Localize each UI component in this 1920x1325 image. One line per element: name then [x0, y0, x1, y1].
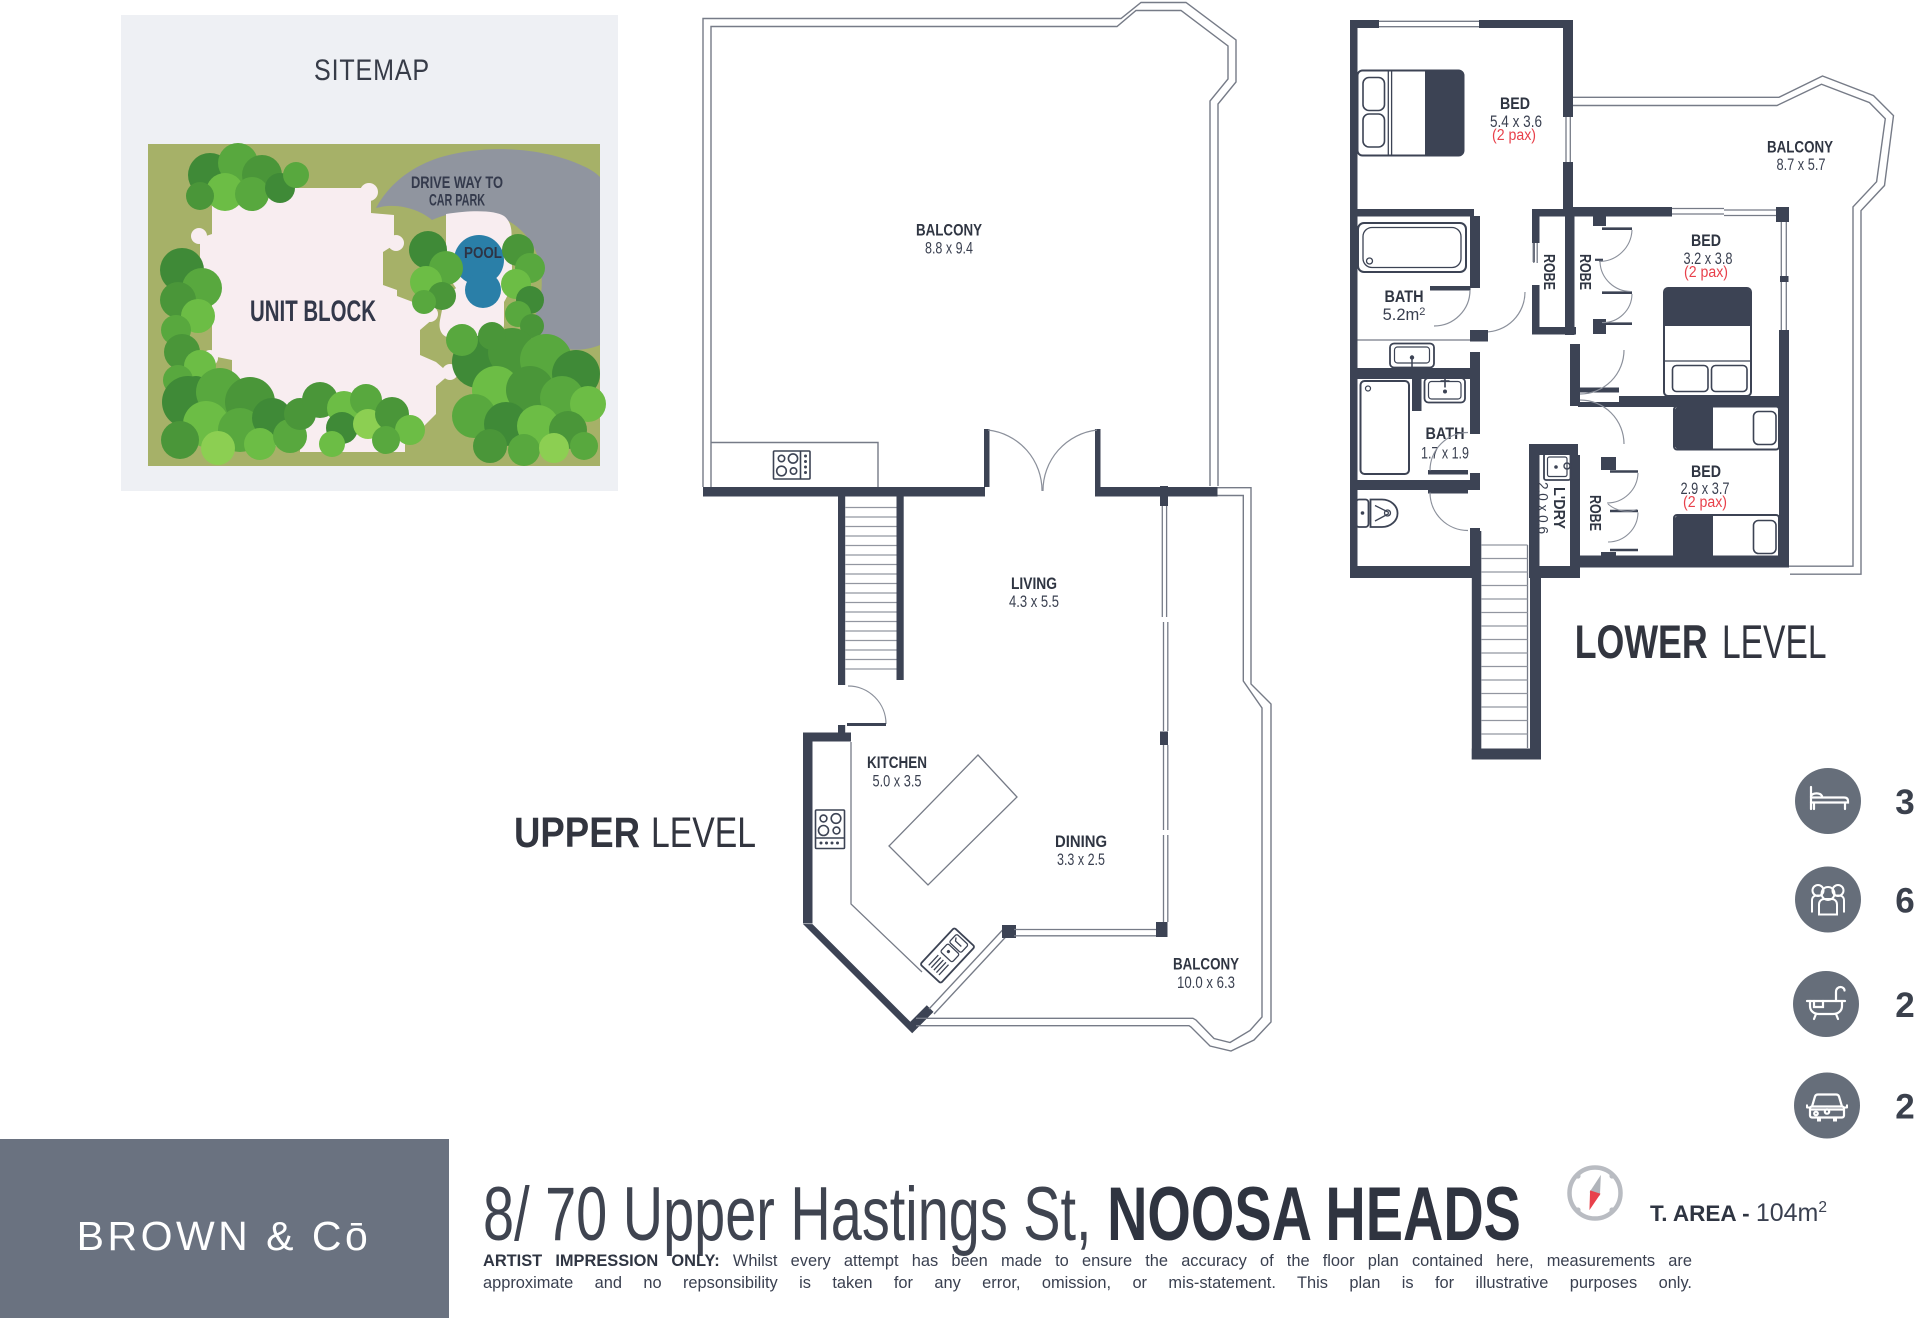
- svg-text:8.8 x 9.4: 8.8 x 9.4: [925, 240, 973, 258]
- svg-text:1.7 x 1.9: 1.7 x 1.9: [1421, 445, 1469, 463]
- svg-text:BATH: BATH: [1385, 287, 1424, 306]
- svg-text:5.0 x 3.5: 5.0 x 3.5: [873, 773, 922, 791]
- svg-text:(2 pax): (2 pax): [1492, 127, 1536, 144]
- svg-text:ROBE: ROBE: [1576, 254, 1593, 290]
- svg-text:KITCHEN: KITCHEN: [867, 753, 927, 772]
- svg-text:POOL: POOL: [464, 245, 502, 262]
- svg-text:DRIVE WAY TO: DRIVE WAY TO: [411, 174, 503, 192]
- svg-text:UPPER: UPPER: [514, 810, 640, 857]
- svg-text:LEVEL: LEVEL: [1722, 615, 1827, 668]
- svg-text:4.3 x 5.5: 4.3 x 5.5: [1009, 593, 1059, 611]
- svg-text:LOWER: LOWER: [1575, 615, 1708, 668]
- svg-text:LIVING: LIVING: [1011, 574, 1057, 593]
- svg-text:2: 2: [1895, 1088, 1914, 1127]
- svg-text:CAR PARK: CAR PARK: [429, 192, 485, 210]
- svg-text:8.7 x 5.7: 8.7 x 5.7: [1777, 156, 1826, 174]
- svg-text:3: 3: [1895, 783, 1914, 822]
- svg-text:2: 2: [1895, 986, 1914, 1025]
- svg-text:BROWN & Cō: BROWN & Cō: [77, 1213, 372, 1259]
- svg-text:L'DRY: L'DRY: [1550, 487, 1567, 530]
- svg-text:BED: BED: [1500, 94, 1530, 113]
- svg-text:10.0 x 6.3: 10.0 x 6.3: [1177, 974, 1235, 992]
- svg-text:2.0 x 0.6: 2.0 x 0.6: [1534, 482, 1550, 534]
- svg-text:ROBE: ROBE: [1540, 254, 1557, 290]
- svg-text:ROBE: ROBE: [1586, 495, 1603, 531]
- svg-text:T. AREA - 104m2: T. AREA - 104m2: [1650, 1199, 1827, 1227]
- svg-text:SITEMAP: SITEMAP: [314, 54, 430, 87]
- svg-text:BED: BED: [1691, 231, 1721, 250]
- svg-text:(2 pax): (2 pax): [1683, 494, 1727, 511]
- svg-text:DINING: DINING: [1055, 832, 1107, 851]
- svg-text:BALCONY: BALCONY: [1767, 138, 1834, 157]
- svg-text:BALCONY: BALCONY: [916, 221, 983, 240]
- svg-text:5.2m2: 5.2m2: [1383, 306, 1426, 324]
- svg-text:BALCONY: BALCONY: [1173, 955, 1240, 974]
- svg-text:UNIT BLOCK: UNIT BLOCK: [250, 295, 376, 328]
- svg-text:3.3 x 2.5: 3.3 x 2.5: [1057, 851, 1105, 869]
- svg-text:6: 6: [1895, 882, 1914, 921]
- svg-text:(2 pax): (2 pax): [1684, 264, 1728, 281]
- svg-text:BED: BED: [1691, 462, 1721, 481]
- svg-text:LEVEL: LEVEL: [651, 810, 756, 857]
